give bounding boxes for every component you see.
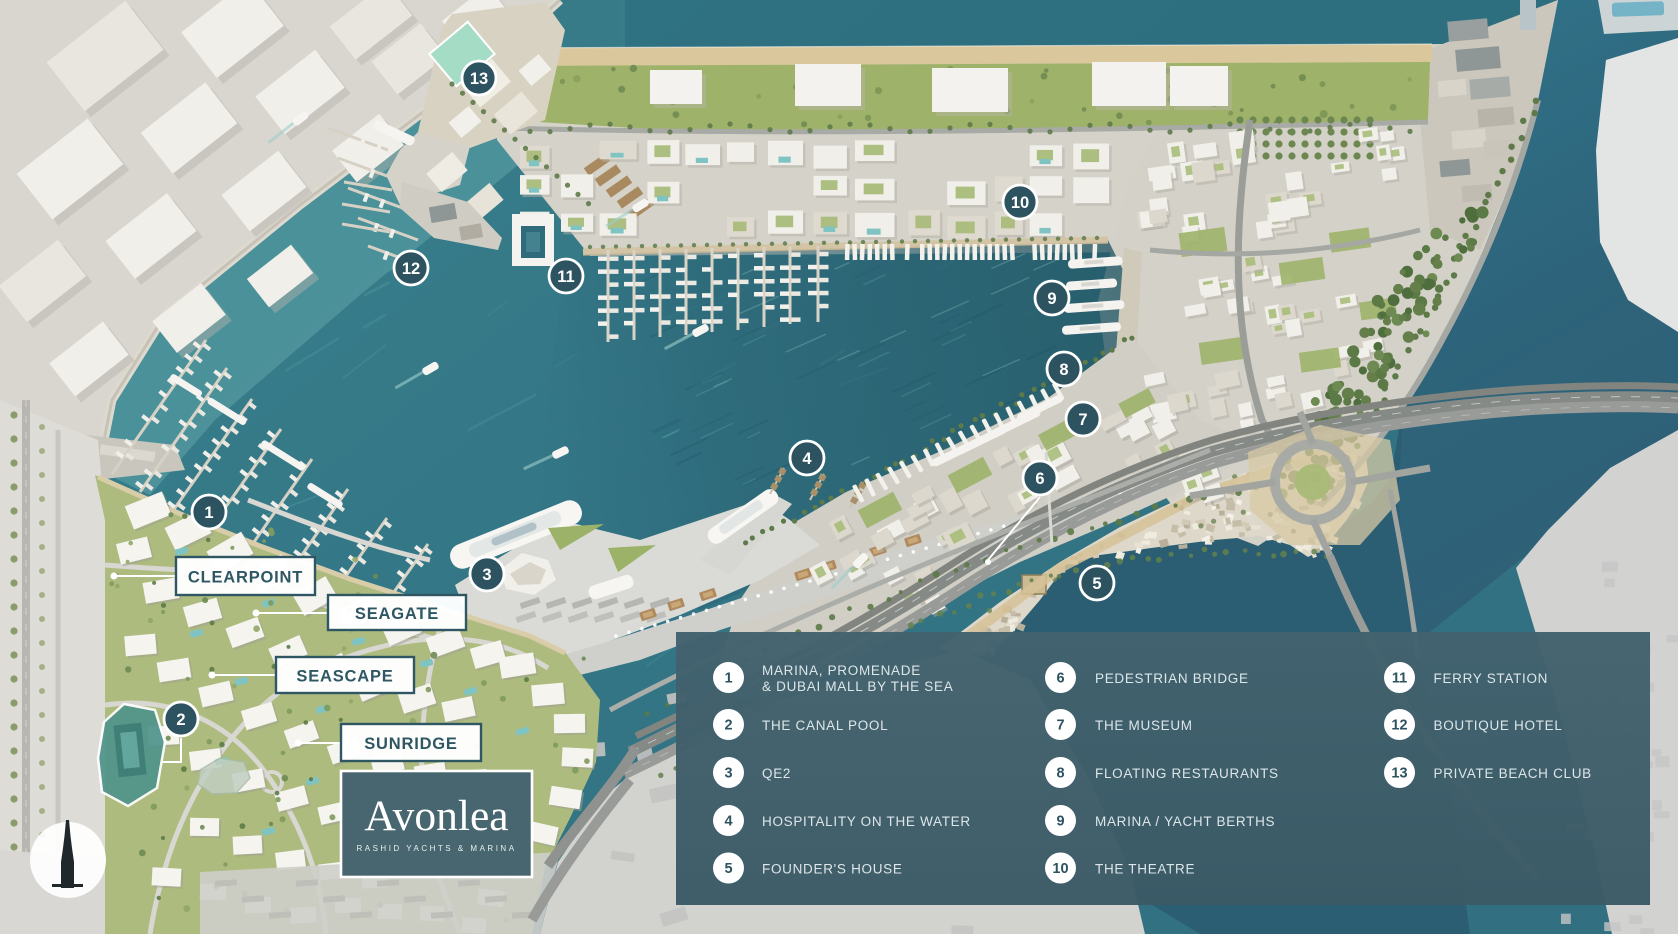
svg-text:13: 13 xyxy=(1391,766,1407,782)
svg-text:8: 8 xyxy=(1059,361,1068,379)
svg-text:10: 10 xyxy=(1011,194,1029,212)
svg-text:THE THEATRE: THE THEATRE xyxy=(1095,862,1195,877)
svg-text:QE2: QE2 xyxy=(762,766,791,781)
svg-text:Avonlea: Avonlea xyxy=(364,792,508,840)
svg-text:1: 1 xyxy=(724,671,732,687)
svg-text:PEDESTRIAN BRIDGE: PEDESTRIAN BRIDGE xyxy=(1095,671,1249,686)
svg-text:7: 7 xyxy=(1078,411,1087,429)
svg-text:13: 13 xyxy=(470,70,488,88)
svg-text:10: 10 xyxy=(1052,861,1068,877)
svg-text:MARINA / YACHT BERTHS: MARINA / YACHT BERTHS xyxy=(1095,814,1275,829)
svg-text:6: 6 xyxy=(1035,470,1044,488)
svg-text:FOUNDER'S HOUSE: FOUNDER'S HOUSE xyxy=(762,862,903,877)
svg-text:RASHID YACHTS & MARINA: RASHID YACHTS & MARINA xyxy=(356,844,516,853)
svg-text:9: 9 xyxy=(1047,290,1056,308)
svg-text:THE MUSEUM: THE MUSEUM xyxy=(1095,718,1193,733)
svg-text:12: 12 xyxy=(402,260,420,278)
svg-text:2: 2 xyxy=(724,718,732,734)
svg-text:5: 5 xyxy=(724,861,732,877)
svg-text:3: 3 xyxy=(724,766,732,782)
svg-text:FLOATING RESTAURANTS: FLOATING RESTAURANTS xyxy=(1095,766,1279,781)
svg-text:MARINA, PROMENADE: MARINA, PROMENADE xyxy=(762,663,921,678)
svg-text:8: 8 xyxy=(1056,766,1064,782)
svg-text:4: 4 xyxy=(724,814,732,830)
svg-text:THE CANAL POOL: THE CANAL POOL xyxy=(762,718,888,733)
svg-text:PRIVATE BEACH CLUB: PRIVATE BEACH CLUB xyxy=(1434,766,1592,781)
svg-text:SEAGATE: SEAGATE xyxy=(355,605,439,623)
svg-text:SEASCAPE: SEASCAPE xyxy=(296,668,393,686)
svg-text:CLEARPOINT: CLEARPOINT xyxy=(188,569,303,587)
svg-text:4: 4 xyxy=(802,450,812,468)
svg-text:SUNRIDGE: SUNRIDGE xyxy=(364,735,458,753)
svg-text:BOUTIQUE HOTEL: BOUTIQUE HOTEL xyxy=(1434,718,1563,733)
svg-text:9: 9 xyxy=(1056,814,1064,830)
svg-text:FERRY STATION: FERRY STATION xyxy=(1434,671,1549,686)
svg-text:11: 11 xyxy=(1392,671,1407,687)
svg-text:11: 11 xyxy=(557,268,574,286)
svg-text:3: 3 xyxy=(482,566,491,584)
svg-text:12: 12 xyxy=(1391,718,1407,734)
svg-text:HOSPITALITY ON THE WATER: HOSPITALITY ON THE WATER xyxy=(762,814,971,829)
svg-text:1: 1 xyxy=(204,504,213,522)
svg-text:& DUBAI MALL BY THE SEA: & DUBAI MALL BY THE SEA xyxy=(762,679,953,694)
svg-text:2: 2 xyxy=(176,711,185,729)
svg-text:6: 6 xyxy=(1056,671,1064,687)
svg-text:7: 7 xyxy=(1056,718,1064,734)
svg-text:5: 5 xyxy=(1092,575,1101,593)
